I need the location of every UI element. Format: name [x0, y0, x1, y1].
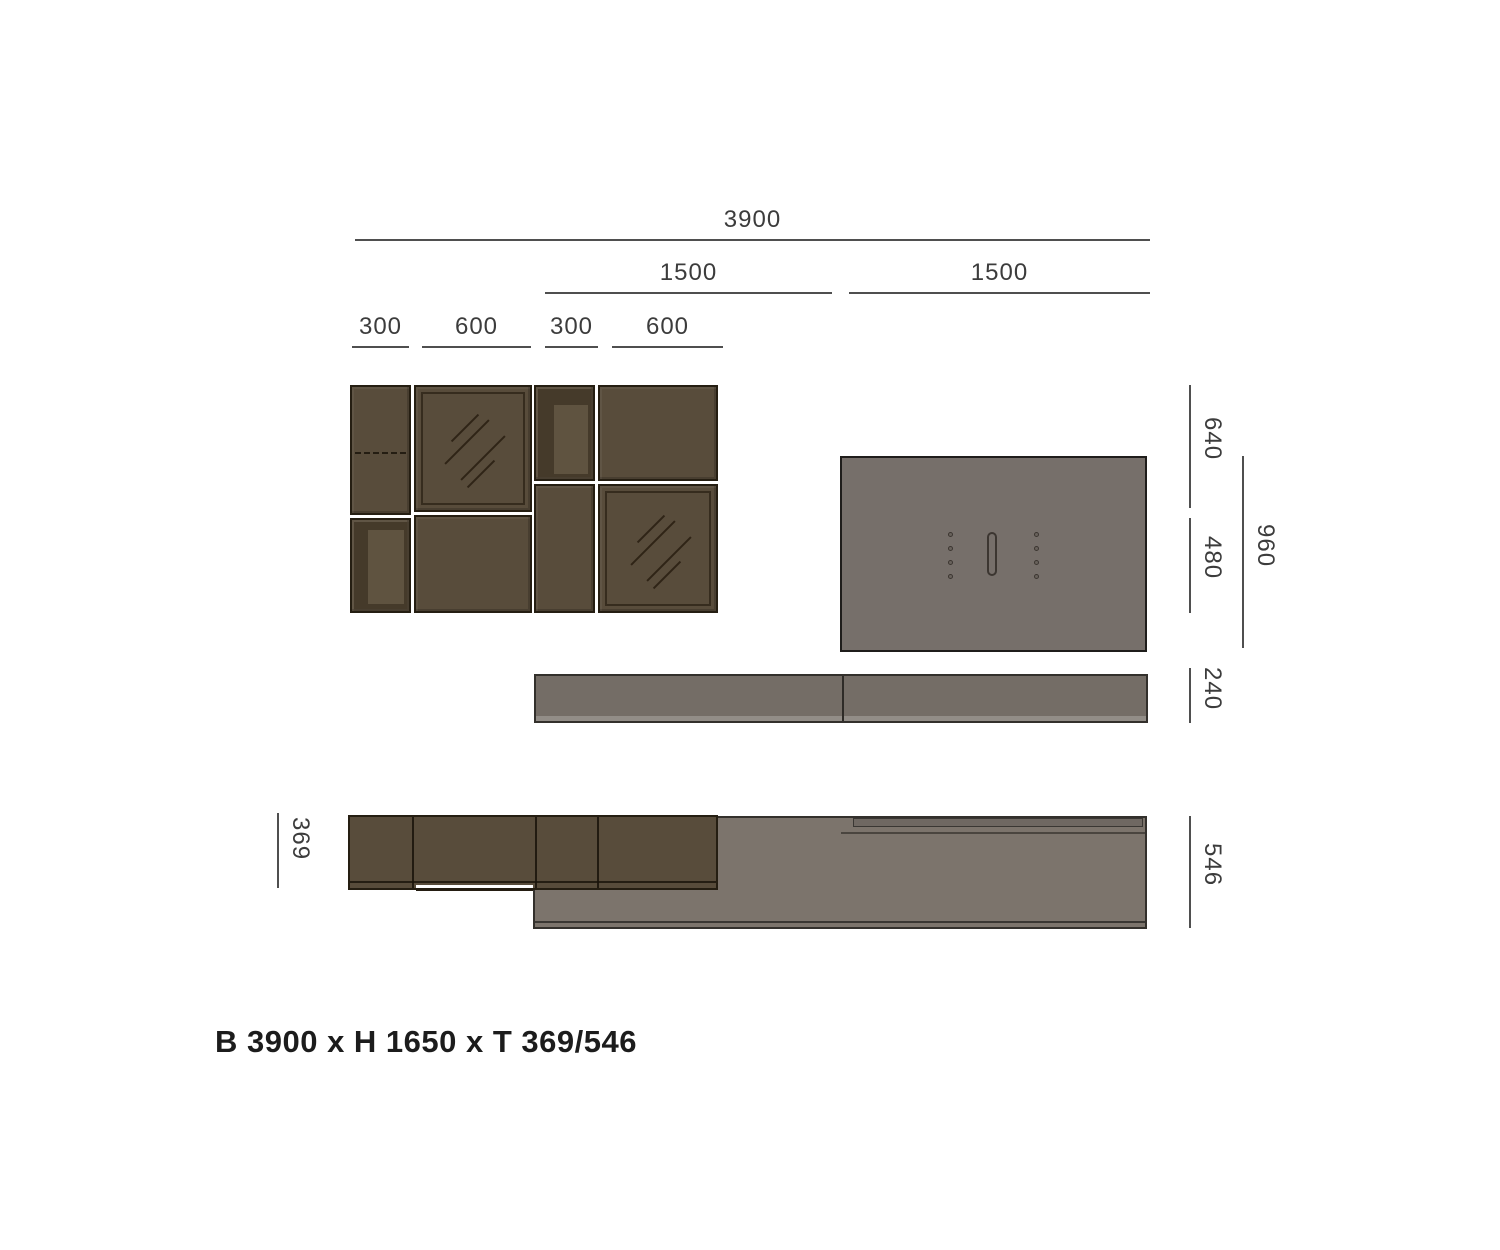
plan-ledge-line: [841, 832, 1145, 834]
dim-line-lowboard-depth: [1189, 816, 1191, 928]
cabinet-cell-panel-top-right: [598, 385, 718, 481]
cabinet-cell-glass-door-top: [414, 385, 532, 512]
dim-label-lowboard-depth: 546: [1198, 843, 1226, 886]
dim-line-top-row-height: [1189, 385, 1191, 508]
dim-line-cabinet-depth: [277, 813, 279, 888]
cable-slot: [987, 532, 997, 576]
plan-cabinet-open-recess: [416, 885, 533, 891]
dim-line-col4-width: [612, 346, 723, 348]
dim-label-panel-height: 960: [1251, 524, 1279, 567]
dim-label-top-row-height: 640: [1198, 417, 1226, 460]
open-compartment-interior: [538, 389, 591, 477]
plan-view-cabinets: [348, 815, 718, 890]
dim-label-col3-width: 300: [545, 312, 598, 342]
cable-hole-dot: [1034, 532, 1039, 537]
cable-hole-dot: [948, 560, 953, 565]
plan-cabinet-front-edge: [350, 881, 716, 883]
dim-line-shelf-height: [1189, 668, 1191, 723]
glass-door-frame: [421, 392, 525, 505]
cable-hole-dot: [948, 532, 953, 537]
dim-line-panel-height: [1242, 456, 1244, 648]
tv-panel: [840, 456, 1147, 652]
dim-label-col1-width: 300: [352, 312, 409, 342]
plan-tv-panel-edge: [853, 818, 1143, 827]
plan-cabinet-divider: [412, 817, 414, 888]
dim-line-panel-right-width: [849, 292, 1150, 294]
plan-cabinet-divider: [597, 817, 599, 888]
glass-door-frame: [605, 491, 711, 606]
dim-label-col2-width: 600: [422, 312, 531, 342]
dim-label-shelf-height: 240: [1198, 667, 1226, 710]
wall-cabinet-elevation: [350, 385, 718, 613]
dim-line-col1-width: [352, 346, 409, 348]
dim-line-bottom-row-height: [1189, 518, 1191, 613]
cable-hole-dot: [1034, 574, 1039, 579]
dim-line-col2-width: [422, 346, 531, 348]
plan-lowboard-front-edge: [535, 921, 1145, 923]
cabinet-cell-open-compartment-top: [534, 385, 595, 481]
open-compartment-back-panel: [368, 530, 404, 604]
plan-cabinet-divider: [535, 817, 537, 888]
dim-label-total-width: 3900: [355, 205, 1150, 235]
lowboard-shelf: [534, 674, 1148, 723]
cable-hole-dot: [948, 546, 953, 551]
technical-drawing-canvas: 3900 1500 1500 300 600 300 600: [0, 0, 1500, 1250]
dim-label-bottom-row-height: 480: [1198, 536, 1226, 579]
cable-hole-dot: [948, 574, 953, 579]
flap-hinge-dashed-line: [355, 452, 406, 454]
open-compartment-back-panel: [554, 405, 588, 474]
product-size-title: B 3900 x H 1650 x T 369/546: [215, 1024, 637, 1060]
cabinet-cell-flap-door: [350, 385, 411, 515]
dim-line-total-width: [355, 239, 1150, 241]
cabinet-cell-door-narrow-bottom: [534, 484, 595, 613]
dim-label-panel-right-width: 1500: [849, 258, 1150, 288]
dim-line-col3-width: [545, 346, 598, 348]
cabinet-cell-open-compartment-left: [350, 518, 411, 613]
open-compartment-interior: [354, 522, 407, 609]
dim-line-panel-left-width: [545, 292, 832, 294]
cabinet-cell-door-bottom-left: [414, 515, 532, 613]
dim-label-panel-left-width: 1500: [545, 258, 832, 288]
cable-hole-dot: [1034, 560, 1039, 565]
dim-label-cabinet-depth: 369: [286, 817, 314, 860]
cable-hole-dot: [1034, 546, 1039, 551]
lowboard-shelf-joint: [842, 676, 844, 721]
dim-label-col4-width: 600: [612, 312, 723, 342]
cabinet-cell-glass-door-bottom: [598, 484, 718, 613]
